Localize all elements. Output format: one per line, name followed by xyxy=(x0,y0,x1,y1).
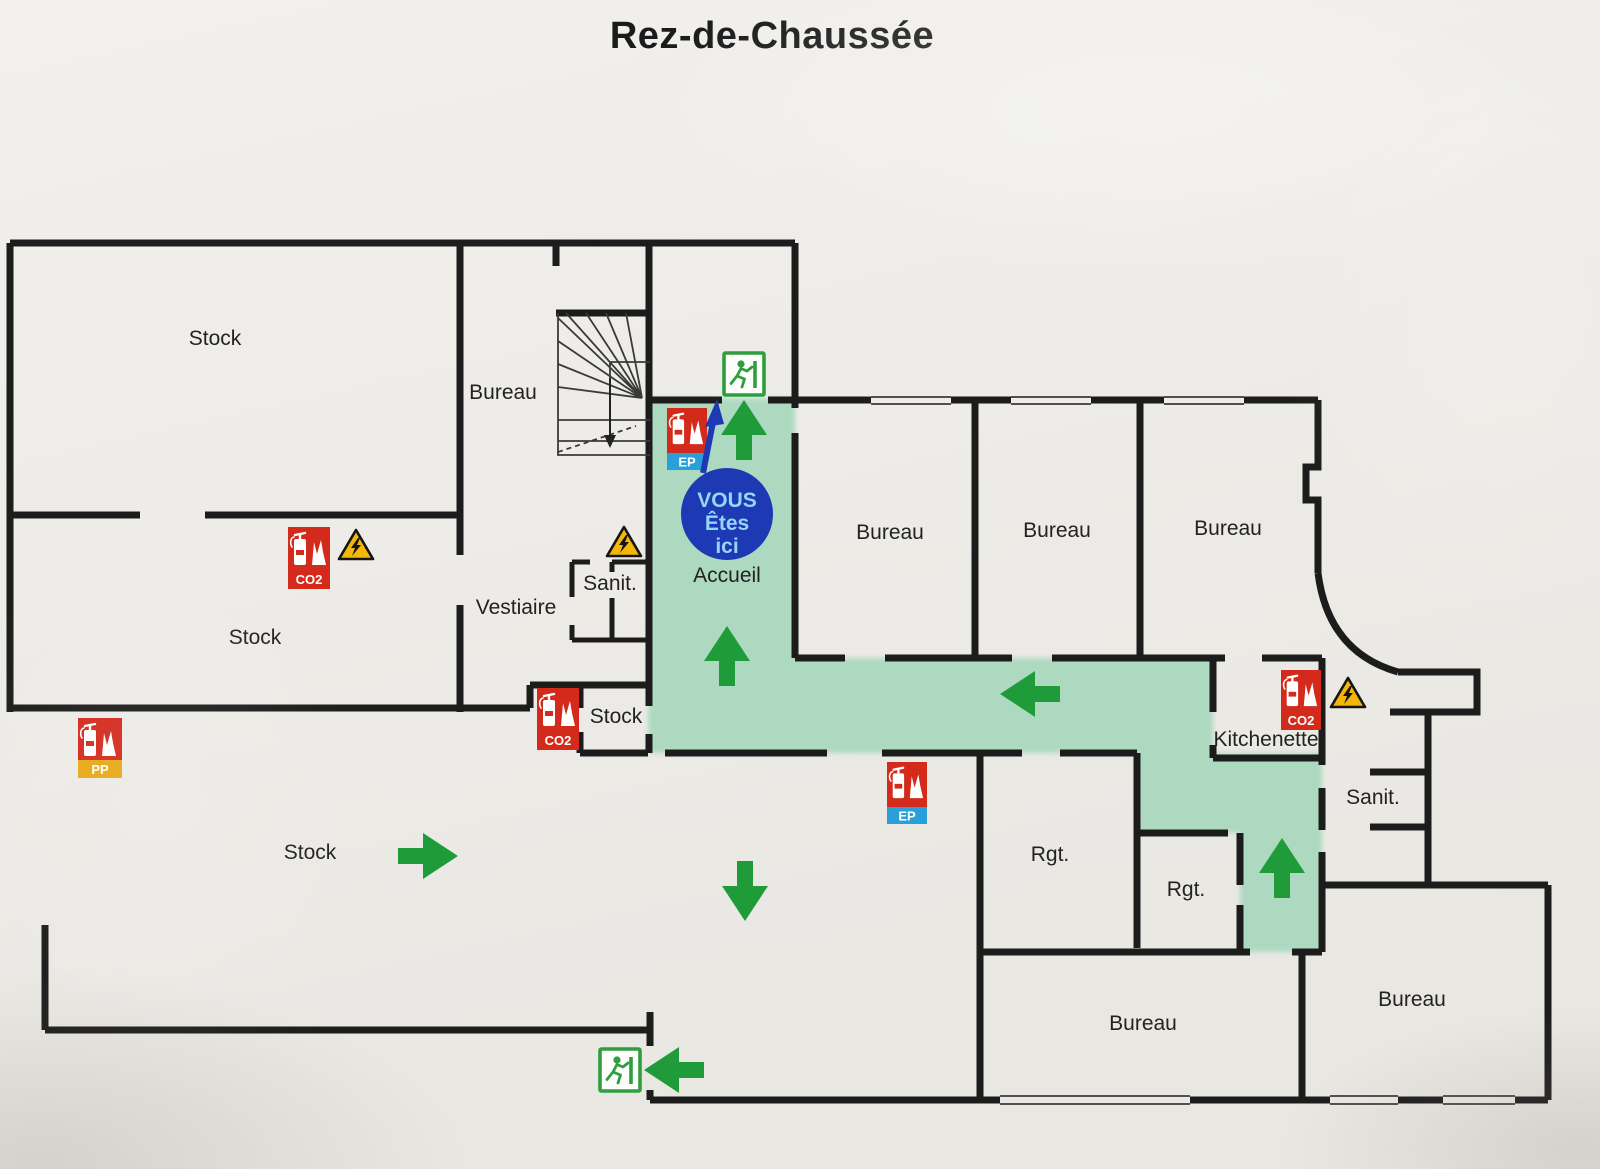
room-label-vestiaire: Vestiaire xyxy=(476,596,557,619)
room-label-bureau-3: Bureau xyxy=(1194,517,1262,540)
extinguisher-sign-co2: CO2 xyxy=(1281,670,1321,730)
extinguisher-label: CO2 xyxy=(296,572,323,587)
you-are-here-text-1: VOUS xyxy=(697,489,757,512)
room-label-bureau-2: Bureau xyxy=(1023,519,1091,542)
you-are-here-text-2: Êtes xyxy=(705,511,749,535)
extinguisher-label: CO2 xyxy=(545,733,572,748)
room-label-bureau-top: Bureau xyxy=(469,381,537,404)
room-label-bureau-bl: Bureau xyxy=(1109,1012,1177,1035)
room-label-stock-mid: Stock xyxy=(229,626,282,649)
room-label-rgt-2: Rgt. xyxy=(1167,878,1206,901)
you-are-here-text-3: ici xyxy=(715,535,738,558)
extinguisher-label: PP xyxy=(91,762,109,777)
room-label-sanit-right: Sanit. xyxy=(1346,786,1400,809)
room-label-bureau-1: Bureau xyxy=(856,521,924,544)
emergency-exit-icon xyxy=(724,353,764,395)
extinguisher-sign-co2: CO2 xyxy=(288,527,330,589)
emergency-exit-icon xyxy=(600,1049,640,1091)
room-label-stock-bottom: Stock xyxy=(284,841,337,864)
room-label-kitchenette: Kitchenette xyxy=(1213,728,1318,751)
plan-title: Rez-de-Chaussée xyxy=(610,15,934,57)
extinguisher-sign-ep: EP xyxy=(667,408,707,470)
extinguisher-sign-ep: EP xyxy=(887,762,927,824)
extinguisher-sign-pp: PP xyxy=(78,718,122,778)
extinguisher-label: EP xyxy=(898,809,916,824)
room-label-bureau-br: Bureau xyxy=(1378,988,1446,1011)
extinguisher-label: EP xyxy=(678,455,696,470)
room-label-accueil: Accueil xyxy=(693,564,761,587)
extinguisher-sign-co2: CO2 xyxy=(537,688,579,750)
extinguisher-label: CO2 xyxy=(1288,713,1315,728)
room-label-sanit-small: Sanit. xyxy=(583,572,637,595)
room-label-stock-nw: Stock xyxy=(189,327,242,350)
room-label-rgt-1: Rgt. xyxy=(1031,843,1070,866)
paper-background xyxy=(0,0,1600,1169)
evacuation-plan-photo: Rez-de-Chaussée Stock Bureau Sanit. xyxy=(0,0,1600,1169)
room-label-stock-small: Stock xyxy=(590,705,643,728)
floor-plan-svg: Rez-de-Chaussée Stock Bureau Sanit. xyxy=(0,0,1600,1169)
